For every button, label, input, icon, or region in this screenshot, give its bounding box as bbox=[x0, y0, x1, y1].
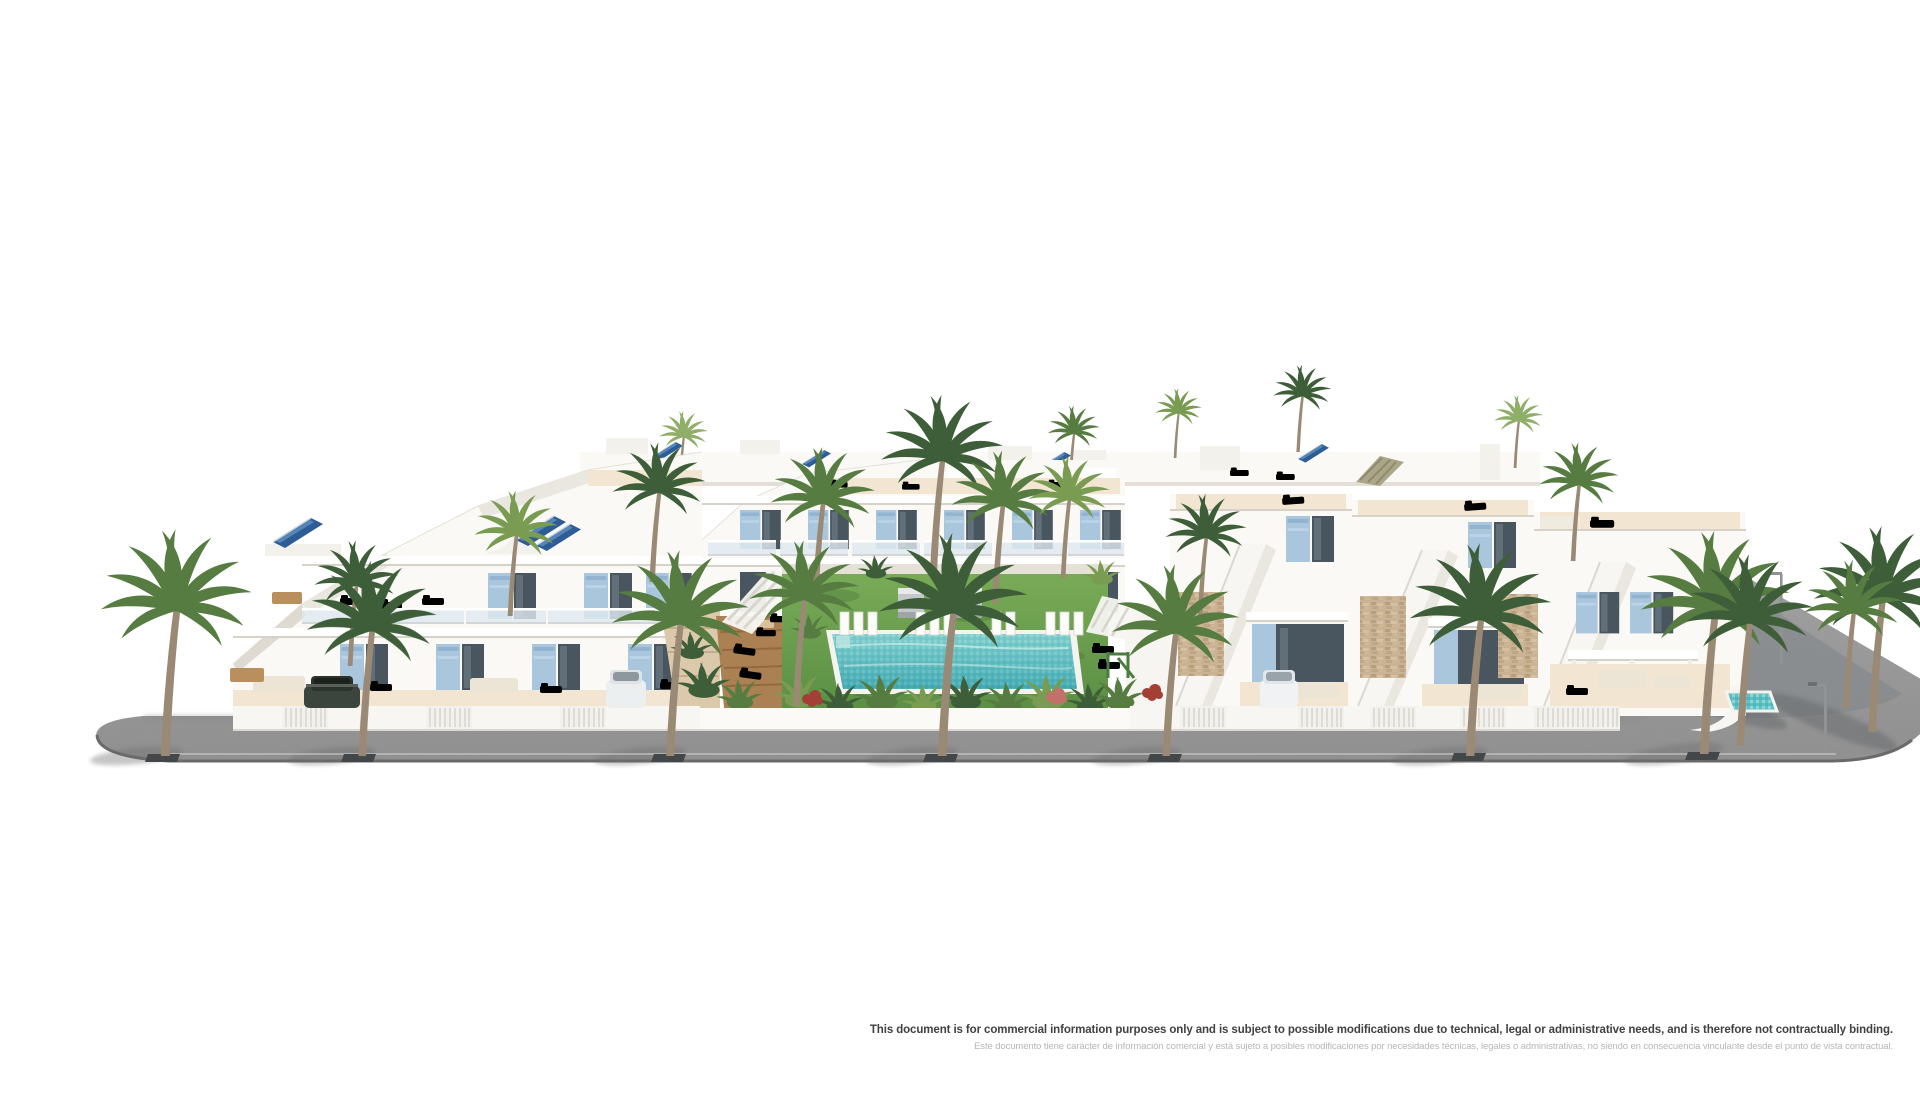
dark-suv bbox=[304, 676, 360, 708]
white-suv-right bbox=[1260, 670, 1298, 708]
architectural-render bbox=[40, 16, 1880, 1064]
disclaimer-line-en: This document is for commercial informat… bbox=[693, 1023, 1893, 1038]
private-pool bbox=[1726, 692, 1777, 711]
architectural-render-page: { "page": { "background": "#ffffff" }, "… bbox=[0, 0, 1920, 1080]
white-suv-left bbox=[606, 670, 646, 708]
front-fences bbox=[233, 706, 1620, 730]
disclaimer-line-es: Este documento tiene carácter de informa… bbox=[693, 1040, 1893, 1053]
disclaimer: This document is for commercial informat… bbox=[693, 1023, 1893, 1053]
